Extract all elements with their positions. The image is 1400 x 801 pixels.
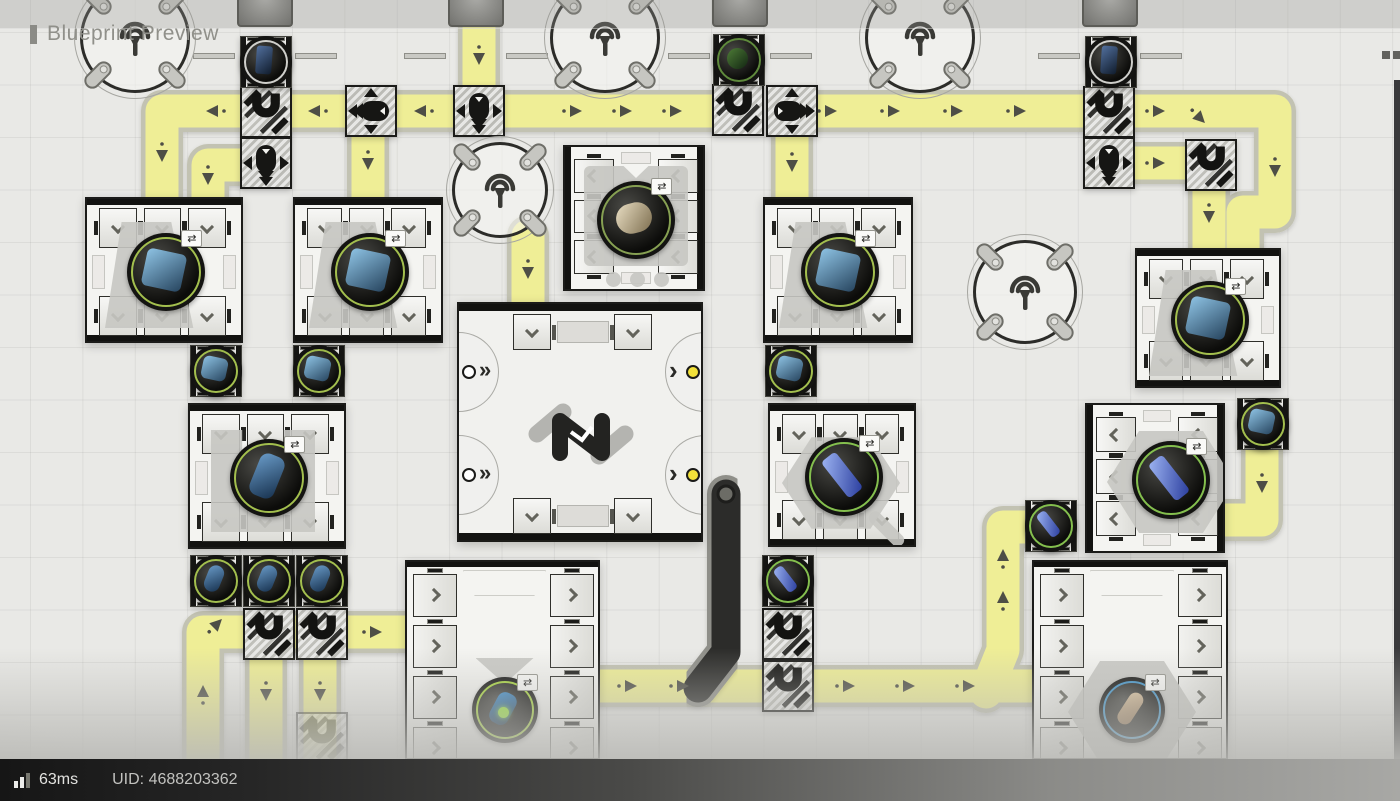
antenna-foot — [568, 64, 579, 75]
port-clamp — [587, 154, 601, 158]
machine-port — [413, 574, 457, 617]
belt-underpass-tile[interactable] — [762, 608, 814, 660]
item-container[interactable] — [296, 555, 348, 607]
machine-assembler-2[interactable]: ⇄ — [1032, 560, 1228, 760]
chevron-right-icon — [564, 639, 578, 653]
signal-bar — [26, 773, 30, 788]
arrow-glyph — [472, 125, 486, 134]
chevron-right-icon — [1054, 588, 1068, 602]
port-clamp — [197, 427, 201, 441]
machine-frame-bar — [407, 562, 598, 567]
arrow-glyph — [785, 125, 799, 134]
blue-ore-icon — [1237, 398, 1289, 450]
port-clamp — [1265, 354, 1269, 368]
chevron-right-icon — [1054, 690, 1068, 704]
arrow-glyph — [493, 104, 502, 118]
arrow-glyph — [364, 88, 378, 97]
port-clamp — [302, 309, 306, 323]
machine-port — [188, 296, 226, 336]
port-clamp — [1109, 412, 1123, 416]
port-clamp — [1054, 670, 1070, 675]
wall-marker — [1382, 51, 1390, 59]
port-clamp — [564, 619, 580, 624]
antenna-foot — [990, 257, 1001, 268]
port-clamp — [900, 427, 904, 441]
ping-value: 63ms — [39, 771, 78, 789]
machine-refiner-1[interactable]: ⇄ — [85, 197, 243, 343]
blue-bottle-icon — [190, 555, 242, 607]
item-shape — [247, 451, 288, 502]
item-disc — [247, 559, 291, 603]
port-clamp — [427, 619, 443, 624]
chevron-right-icon — [427, 588, 441, 602]
chevron-down-icon — [401, 308, 415, 322]
machine-port — [413, 676, 457, 719]
belt-underpass-tile[interactable] — [1185, 139, 1237, 191]
item-container[interactable] — [190, 345, 242, 397]
item-container[interactable] — [765, 345, 817, 397]
machine-side-panel — [1143, 534, 1171, 546]
blue-ore-icon — [293, 345, 345, 397]
machine-side-panel — [300, 255, 313, 289]
item-shape — [1148, 454, 1191, 501]
machine-side-panel — [326, 461, 339, 495]
arrow-glyph — [1123, 156, 1132, 170]
blueprint-preview-screen: ⇄⇄⇄⇄⇄⇄⇄⇄⇄⇄»›»› Blueprint Pr — [0, 0, 1400, 801]
swap-icon: ⇄ — [1145, 674, 1166, 691]
wifi-icon — [1002, 271, 1048, 317]
machine-port — [550, 727, 594, 760]
dome-rail — [1038, 53, 1080, 59]
swap-icon: ⇄ — [181, 230, 202, 247]
port-clamp — [1192, 721, 1208, 726]
machine-port — [550, 676, 594, 719]
item-disc — [809, 442, 879, 512]
port-clamp — [1192, 670, 1208, 675]
belt-underpass-tile[interactable] — [296, 712, 348, 764]
machine-top-decor — [1090, 570, 1174, 596]
chevron-down-icon — [871, 308, 885, 322]
item-shape — [344, 247, 391, 292]
item-shape — [307, 563, 332, 594]
signal-bars-icon — [14, 773, 30, 788]
machine-frame-bar — [295, 199, 441, 205]
chevron-right-icon — [1054, 741, 1068, 755]
belt-underpass-tile[interactable] — [296, 608, 348, 660]
swap-icon: ⇄ — [1186, 438, 1207, 455]
machine-side-panel — [92, 255, 105, 289]
blue-ore-icon — [190, 345, 242, 397]
machine-crystallizer-1[interactable]: ⇄ — [768, 403, 916, 547]
antenna-foot — [1049, 316, 1060, 327]
machine-frame-bar — [1087, 405, 1093, 551]
machine-frame-bar — [765, 199, 911, 205]
item-disc — [1089, 40, 1133, 84]
port-clamp — [427, 309, 431, 323]
item-shape — [255, 45, 273, 74]
port-clamp — [1109, 454, 1123, 458]
antenna-foot — [946, 64, 957, 75]
dome-rail — [193, 53, 235, 59]
dome-rail — [770, 53, 812, 59]
item-container[interactable] — [240, 36, 292, 88]
swap-icon: ⇄ — [859, 435, 880, 452]
chevron-right-icon — [1192, 741, 1206, 755]
antenna-foot — [467, 157, 478, 168]
item-shape — [613, 199, 656, 237]
port-clamp — [197, 515, 201, 529]
wall-marker — [1393, 51, 1400, 59]
item-shape — [1246, 408, 1275, 436]
wifi-icon — [477, 169, 523, 215]
title-bar-icon — [30, 25, 37, 44]
item-shape — [1184, 295, 1231, 340]
pill-notch — [1105, 149, 1113, 154]
machine-side-panel — [423, 255, 436, 289]
item-shape — [254, 563, 279, 594]
arrow-glyph — [806, 104, 815, 118]
arrow-glyph — [348, 104, 357, 118]
dome-rail — [404, 53, 446, 59]
machine-side-panel — [1142, 306, 1155, 334]
port-clamp — [1265, 272, 1269, 286]
machine-port — [1178, 574, 1222, 617]
port-clamp — [302, 221, 306, 235]
item-disc — [1029, 504, 1073, 548]
port-clamp — [427, 670, 443, 675]
machine-side-panel — [1143, 410, 1171, 422]
port-clamp — [227, 221, 231, 235]
item-shape — [201, 563, 226, 594]
port-clamp — [671, 275, 685, 279]
arrow-glyph — [456, 104, 465, 118]
item-shape — [774, 355, 803, 383]
item-shape — [821, 451, 864, 498]
dome-rail — [668, 53, 710, 59]
machine-port — [1040, 574, 1084, 617]
belt-underpass-tile[interactable] — [240, 86, 292, 138]
belt-underpass-tile[interactable] — [762, 660, 814, 712]
item-disc — [769, 349, 813, 393]
blue-building-icon — [240, 36, 292, 88]
machine-top-decor — [463, 570, 546, 596]
item-disc — [1241, 402, 1285, 446]
port-clamp — [1054, 568, 1070, 573]
machine-frame-bar — [190, 405, 344, 411]
machine-frame-bar — [1034, 562, 1226, 567]
chevron-left-icon — [1109, 511, 1123, 525]
antenna-foot — [161, 64, 172, 75]
item-disc — [1136, 445, 1206, 515]
port-clamp — [94, 221, 98, 235]
chevron-right-icon — [564, 588, 578, 602]
port-clamp — [777, 513, 781, 527]
item-container[interactable] — [1237, 398, 1289, 450]
item-container[interactable] — [1025, 500, 1077, 552]
splitter-tile[interactable] — [766, 85, 818, 137]
port-clamp — [1191, 412, 1205, 416]
chevron-down-icon — [200, 308, 214, 322]
item-shape — [1100, 45, 1118, 74]
chevron-right-icon — [564, 690, 578, 704]
item-container[interactable] — [243, 555, 295, 607]
arrow-glyph — [785, 88, 799, 97]
dark-pipe-cap — [718, 486, 734, 502]
item-disc — [335, 237, 405, 307]
central-hub-machine[interactable]: »›»› — [457, 302, 703, 542]
antenna-foot — [1049, 257, 1060, 268]
antenna-foot — [631, 64, 642, 75]
machine-port — [550, 574, 594, 617]
machine-refiner-3[interactable]: ⇄ — [763, 197, 913, 343]
antenna-foot — [98, 64, 109, 75]
swap-icon: ⇄ — [284, 436, 305, 453]
swap-icon: ⇄ — [1225, 278, 1246, 295]
signal-bar — [14, 781, 18, 788]
splitter-tile[interactable] — [453, 85, 505, 137]
machine-refiner-4[interactable]: ⇄ — [1135, 248, 1281, 388]
chevron-right-icon — [1192, 690, 1206, 704]
port-clamp — [1191, 537, 1205, 541]
item-shape — [1036, 509, 1062, 538]
arrow-glyph — [243, 156, 252, 170]
pill-notch — [262, 149, 270, 154]
chevron-right-icon — [427, 690, 441, 704]
port-clamp — [564, 670, 580, 675]
machine-port — [861, 296, 896, 336]
port-clamp — [227, 309, 231, 323]
page-title: Blueprint Preview — [30, 22, 219, 46]
dome-rail — [295, 53, 337, 59]
machine-filler-1[interactable]: ⇄ — [188, 403, 346, 549]
belt-segment — [208, 165, 240, 197]
blue-crystal-icon — [1025, 500, 1077, 552]
port-clamp — [897, 221, 901, 235]
port-clamp — [772, 221, 776, 235]
blue-crystal-icon — [762, 555, 814, 607]
belt-underpass-tile[interactable] — [1083, 86, 1135, 138]
swap-icon: ⇄ — [855, 230, 876, 247]
port-clamp — [427, 721, 443, 726]
port-clamp — [772, 309, 776, 323]
item-disc — [194, 559, 238, 603]
machine-side-panel — [896, 461, 909, 493]
machine-crystallizer-2[interactable]: ⇄ — [1085, 403, 1225, 553]
antenna-foot — [990, 316, 1001, 327]
hub-logo — [459, 304, 703, 542]
port-clamp — [564, 721, 580, 726]
blue-bottle-icon — [296, 555, 348, 607]
chevron-left-icon — [1109, 427, 1123, 441]
port-clamp — [1192, 619, 1208, 624]
status-bar: 63ms UID: 4688203362 — [0, 759, 1400, 801]
item-container[interactable] — [293, 345, 345, 397]
item-disc — [805, 237, 875, 307]
port-clamp — [1054, 721, 1070, 726]
blue-ore-icon — [765, 345, 817, 397]
blueprint-canvas[interactable]: ⇄⇄⇄⇄⇄⇄⇄⇄⇄⇄»›»› — [0, 0, 1400, 801]
belt-underpass-tile[interactable] — [712, 84, 764, 136]
item-disc — [1175, 285, 1245, 355]
machine-silhouette — [654, 272, 669, 287]
signal-bar — [20, 777, 24, 788]
boundary-wall — [1394, 80, 1400, 801]
pill-notch — [475, 97, 483, 102]
item-container[interactable] — [762, 555, 814, 607]
chevron-right-icon — [564, 741, 578, 755]
port-clamp — [1144, 272, 1148, 286]
machine-side-panel — [223, 255, 236, 289]
machine-side-panel — [893, 255, 906, 289]
chevron-down-icon — [258, 426, 272, 440]
port-clamp — [1192, 568, 1208, 573]
swap-icon: ⇄ — [385, 230, 406, 247]
machine-side-panel — [770, 255, 783, 289]
port-clamp — [1109, 537, 1123, 541]
chevron-right-icon — [427, 741, 441, 755]
power-antenna[interactable] — [973, 240, 1077, 344]
machine-frame-bar — [1137, 250, 1279, 256]
port-clamp — [564, 568, 580, 573]
plant-icon — [713, 34, 765, 86]
item-shape — [814, 247, 861, 292]
chevron-right-icon — [1192, 588, 1206, 602]
belt-underpass-tile[interactable] — [243, 608, 295, 660]
item-shape — [199, 355, 228, 383]
item-disc — [717, 38, 761, 82]
item-shape — [302, 355, 331, 383]
machine-port — [1178, 727, 1222, 760]
item-disc — [234, 443, 304, 513]
pill-notch — [380, 107, 385, 115]
item-disc — [297, 349, 341, 393]
machine-port — [413, 727, 457, 760]
machine-side-panel — [195, 461, 208, 495]
port-clamp — [1054, 619, 1070, 624]
chevron-right-icon — [427, 639, 441, 653]
dome-rail — [1140, 53, 1182, 59]
arrow-glyph — [280, 156, 289, 170]
machine-frame-bar — [87, 199, 241, 205]
port-clamp — [587, 275, 601, 279]
chevron-right-icon — [1054, 639, 1068, 653]
item-disc — [194, 349, 238, 393]
dome-rail — [506, 53, 548, 59]
machine-frame-bar — [565, 147, 571, 289]
chevron-down-icon — [792, 426, 806, 440]
splitter-tile[interactable] — [345, 85, 397, 137]
port-clamp — [900, 513, 904, 527]
antenna-foot — [521, 157, 532, 168]
item-container[interactable] — [190, 555, 242, 607]
port-clamp — [897, 309, 901, 323]
arrow-glyph — [259, 177, 273, 186]
port-clamp — [777, 427, 781, 441]
machine-silhouette — [606, 272, 621, 287]
swap-icon: ⇄ — [651, 178, 672, 195]
port-clamp — [94, 309, 98, 323]
splitter-tile[interactable] — [1083, 137, 1135, 189]
pill-notch — [778, 107, 783, 115]
blue-building-icon — [1085, 36, 1137, 88]
chevron-down-icon — [1240, 353, 1254, 367]
port-clamp — [330, 515, 334, 529]
arrow-glyph — [1102, 177, 1116, 186]
port-clamp — [330, 427, 334, 441]
port-clamp — [427, 221, 431, 235]
machine-frame-bar — [770, 405, 914, 411]
arrow-glyph — [1086, 156, 1095, 170]
machine-silhouette — [630, 272, 645, 287]
arrow-glyph — [364, 125, 378, 134]
splitter-tile[interactable] — [240, 137, 292, 189]
machine-port — [391, 296, 426, 336]
swap-icon: ⇄ — [517, 674, 538, 691]
machine-port — [550, 625, 594, 668]
chevron-down-icon — [200, 220, 214, 234]
port-clamp — [427, 568, 443, 573]
item-shape — [1114, 689, 1145, 726]
item-shape — [773, 564, 799, 593]
item-disc — [766, 559, 810, 603]
machine-side-panel — [621, 152, 651, 164]
port-clamp — [671, 154, 685, 158]
port-clamp — [242, 427, 246, 441]
machine-port — [1040, 727, 1084, 760]
blue-bottle-icon — [243, 555, 295, 607]
machine-port — [413, 625, 457, 668]
power-antenna[interactable] — [452, 142, 548, 238]
machine-refiner-2[interactable]: ⇄ — [293, 197, 443, 343]
item-shape — [140, 247, 187, 292]
item-shape — [727, 48, 748, 69]
antenna-foot — [883, 64, 894, 75]
chevron-right-icon — [1192, 639, 1206, 653]
machine-port — [1040, 625, 1084, 668]
item-disc — [131, 237, 201, 307]
page-title-text: Blueprint Preview — [47, 22, 219, 46]
item-disc — [244, 40, 288, 84]
item-accent — [498, 707, 509, 718]
item-container[interactable] — [713, 34, 765, 86]
machine-port — [1178, 625, 1222, 668]
port-clamp — [1144, 354, 1148, 368]
machine-assembler-1[interactable]: ⇄ — [405, 560, 600, 760]
uid-value: UID: 4688203362 — [112, 771, 237, 789]
machine-side-panel — [1261, 306, 1274, 334]
machine-press-1[interactable]: ⇄ — [563, 145, 705, 291]
item-disc — [300, 559, 344, 603]
item-container[interactable] — [1085, 36, 1137, 88]
item-disc — [601, 185, 671, 255]
